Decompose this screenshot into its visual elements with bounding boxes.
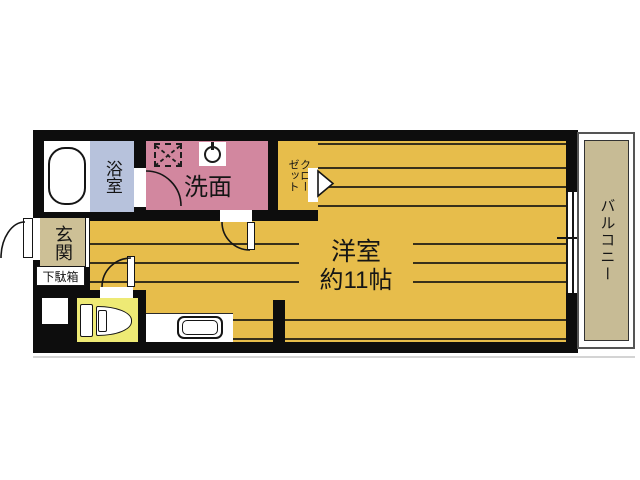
kitchen-sink-inner bbox=[182, 320, 218, 335]
shadow-line bbox=[33, 356, 635, 358]
window-pane-line bbox=[572, 192, 574, 293]
shoe-cabinet: 下駄箱 bbox=[36, 266, 85, 286]
bathtub-icon bbox=[48, 147, 86, 205]
toilet-icon bbox=[80, 304, 93, 337]
entrance-door-swing-arc-icon bbox=[1, 222, 25, 258]
wall-stub bbox=[273, 300, 285, 342]
closet-door-strip bbox=[308, 168, 318, 202]
service-niche bbox=[42, 298, 68, 324]
main-room-size-label: 約11帖 bbox=[320, 267, 393, 295]
main-room-label: 洋室 bbox=[331, 238, 381, 267]
bathroom-door-opening bbox=[134, 168, 146, 207]
washroom-door-opening bbox=[220, 210, 252, 222]
entrance-step-edge bbox=[85, 218, 90, 267]
washroom-label: 洗面 bbox=[184, 167, 232, 202]
floor-plan: 浴室 洗面 クロー ゼット 洋室 約11帖 玄関 下駄箱 bbox=[0, 0, 640, 480]
washroom-door-leaf bbox=[247, 222, 255, 250]
balcony-label: バルコニー bbox=[599, 198, 615, 283]
toilet-door-opening bbox=[100, 287, 133, 298]
bathroom-area: 浴室 bbox=[90, 141, 134, 212]
toilet-door-leaf bbox=[127, 256, 135, 287]
entrance-door-opening bbox=[33, 218, 40, 260]
balcony-area: バルコニー bbox=[584, 140, 629, 341]
entrance-area: 玄関 bbox=[40, 218, 85, 267]
entrance-label: 玄関 bbox=[53, 225, 72, 261]
toilet-seat bbox=[98, 310, 107, 332]
main-room-upper-floor bbox=[318, 141, 566, 222]
bathroom-label: 浴室 bbox=[103, 160, 121, 194]
washroom-label-box: 洗面 bbox=[178, 170, 238, 198]
shoe-cabinet-label: 下駄箱 bbox=[42, 268, 78, 285]
entrance-door-leaf bbox=[23, 218, 33, 258]
washer-space-icon bbox=[154, 143, 182, 167]
closet-label: クロー ゼット bbox=[286, 159, 309, 192]
window-pane-line bbox=[566, 192, 568, 293]
washbasin-tap bbox=[211, 142, 214, 150]
main-room-label-box: 洋室 約11帖 bbox=[299, 237, 413, 295]
